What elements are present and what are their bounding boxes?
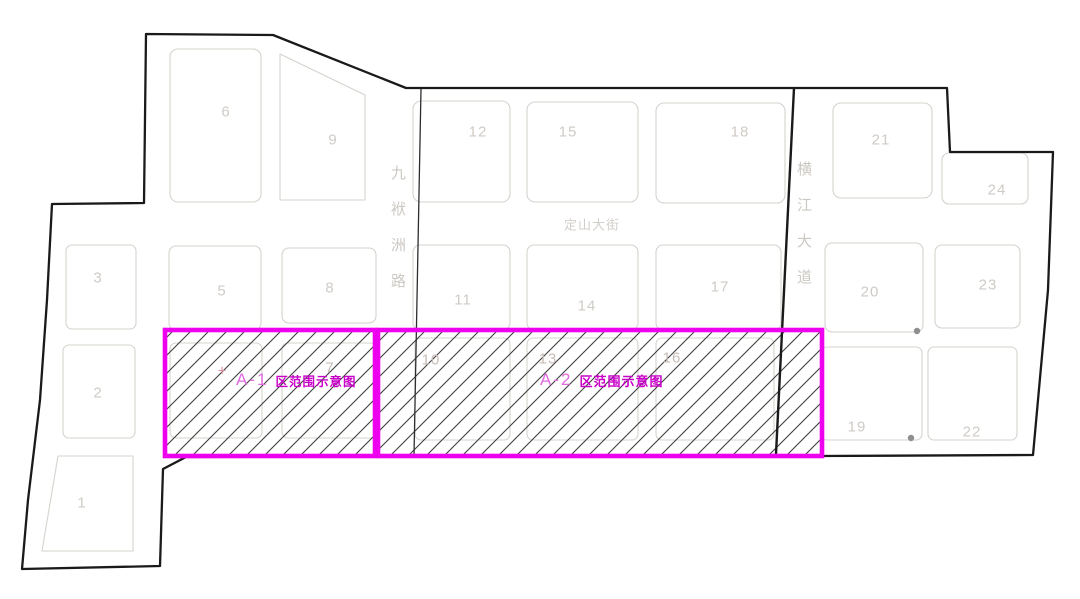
parcel-label-12: 12 — [469, 124, 488, 141]
parcel-map-canvas: 1 2 3 5 6 7 8 9 10 11 12 13 14 15 16 17 … — [0, 0, 1080, 599]
parcel-label-9: 9 — [328, 132, 337, 149]
parcel-label-22: 22 — [963, 424, 982, 441]
parcel-21 — [833, 103, 932, 198]
parcel-label-16: 16 — [663, 350, 682, 367]
parcel-6 — [170, 49, 261, 202]
plan-drawing — [0, 0, 1080, 599]
parcel-label-19: 19 — [848, 419, 867, 436]
street-name-dingshan-street: 定山大街 — [564, 215, 620, 234]
zone-a2-hatch-fill — [378, 330, 822, 456]
parcel-label-15: 15 — [559, 124, 578, 141]
parcel-label-14: 14 — [578, 298, 597, 315]
parcel-label-10: 10 — [422, 352, 441, 369]
parcel-label-21: 21 — [872, 132, 891, 149]
parcel-5 — [169, 246, 261, 330]
outer-boundary — [22, 34, 1053, 569]
parcel-18 — [656, 103, 785, 203]
parcel-14 — [527, 245, 638, 330]
corner-dot-upper — [914, 328, 920, 334]
parcel-19 — [821, 347, 922, 440]
zone-a1-code: A-1 — [236, 370, 268, 390]
parcel-label-24: 24 — [988, 182, 1007, 199]
parcel-1 — [42, 456, 133, 551]
street-name-hengjiang-avenue: 横江大道 — [795, 161, 811, 305]
zone-a2-label: A-2 区范围示意图 — [540, 370, 663, 390]
parcel-label-2: 2 — [93, 385, 102, 402]
parcel-24 — [942, 153, 1028, 204]
parcel-3 — [66, 245, 136, 329]
zone-a1-label: A-1 区范围示意图 — [236, 370, 356, 390]
corner-dot-lower — [908, 435, 914, 441]
zone-a1-suffix: 区范围示意图 — [275, 371, 356, 390]
parcel-label-6: 6 — [221, 104, 230, 121]
parcel-12 — [413, 101, 510, 202]
parcel-label-23: 23 — [979, 277, 998, 294]
parcel-label-3: 3 — [93, 270, 102, 287]
parcel-23 — [935, 245, 1020, 328]
plus-marker: + — [218, 363, 227, 380]
parcel-label-1: 1 — [77, 495, 86, 512]
parcel-label-13: 13 — [539, 351, 558, 368]
zone-a1-hatch-fill — [165, 330, 375, 456]
zone-a2-suffix: 区范围示意图 — [579, 371, 663, 390]
street-name-jiufuzhou-road: 九袱洲路 — [389, 165, 405, 309]
parcel-label-11: 11 — [454, 292, 472, 309]
parcel-label-5: 5 — [217, 283, 226, 300]
parcel-11 — [413, 245, 510, 330]
parcel-label-18: 18 — [731, 124, 750, 141]
parcel-15 — [527, 102, 638, 202]
parcel-9 — [280, 54, 365, 200]
zone-a2-code: A-2 — [540, 370, 572, 390]
parcel-label-17: 17 — [711, 279, 730, 296]
parcel-label-20: 20 — [861, 284, 880, 301]
parcel-label-8: 8 — [325, 280, 334, 297]
